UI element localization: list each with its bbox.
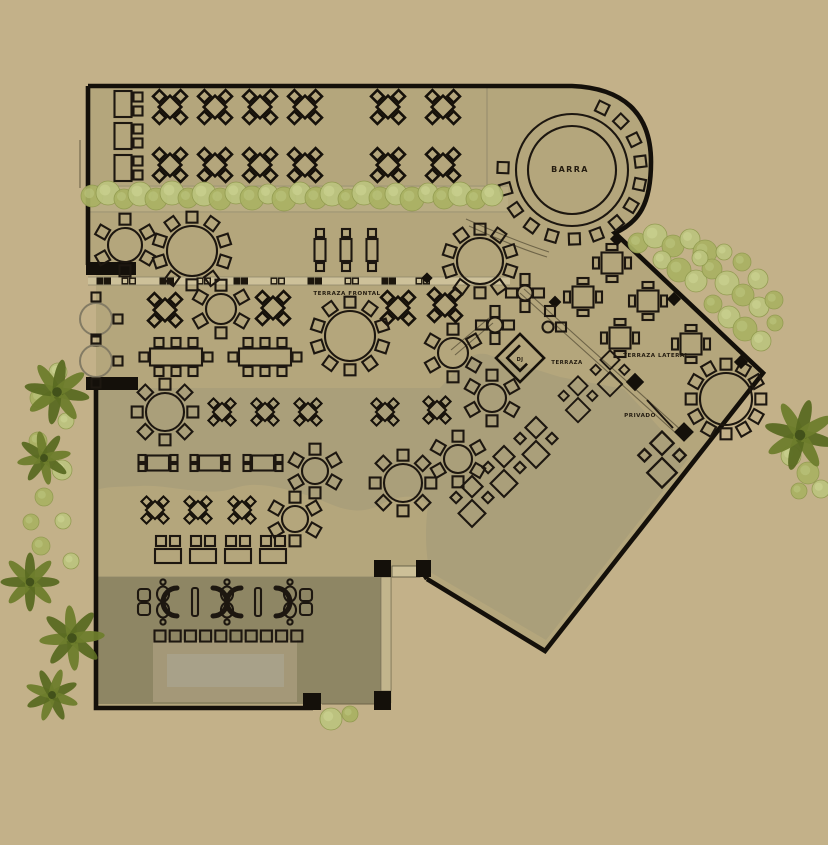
column <box>416 560 431 577</box>
bush <box>63 553 79 569</box>
bush <box>35 488 53 506</box>
bush <box>704 295 722 313</box>
bush <box>751 331 771 351</box>
bush <box>748 269 768 289</box>
bush <box>342 706 358 722</box>
label-dj: DJ <box>517 357 524 363</box>
column <box>374 560 391 577</box>
label-privado: PRIVADO <box>624 413 656 419</box>
bush <box>765 291 783 309</box>
bush <box>320 708 342 730</box>
palm-tree <box>6 420 81 495</box>
label-terraza-lateral: TERRAZA LATERAL <box>623 353 689 359</box>
bush <box>733 253 751 271</box>
bush <box>32 537 50 555</box>
floorplan-canvas: BARRA TERRAZA FRONTAL TERRAZA TERRAZA LA… <box>0 0 828 845</box>
bush <box>767 315 783 331</box>
bush <box>23 514 39 530</box>
palm-tree <box>0 552 59 611</box>
door-corridor <box>381 566 420 691</box>
palm-tree <box>16 659 88 731</box>
wall-block-upper <box>86 262 136 275</box>
label-barra: BARRA <box>551 165 589 174</box>
bush <box>692 250 708 266</box>
floorplan-svg: BARRA TERRAZA FRONTAL TERRAZA TERRAZA LA… <box>0 0 828 845</box>
bush <box>481 184 503 206</box>
bush <box>791 483 807 499</box>
label-terraza: TERRAZA <box>551 360 583 366</box>
stage <box>153 640 297 702</box>
bush <box>812 480 828 498</box>
label-terraza-frontal: TERRAZA FRONTAL <box>313 291 380 297</box>
stage-inner <box>167 654 284 687</box>
column <box>374 691 391 710</box>
bush <box>55 513 71 529</box>
column <box>303 693 321 710</box>
bush <box>716 244 732 260</box>
